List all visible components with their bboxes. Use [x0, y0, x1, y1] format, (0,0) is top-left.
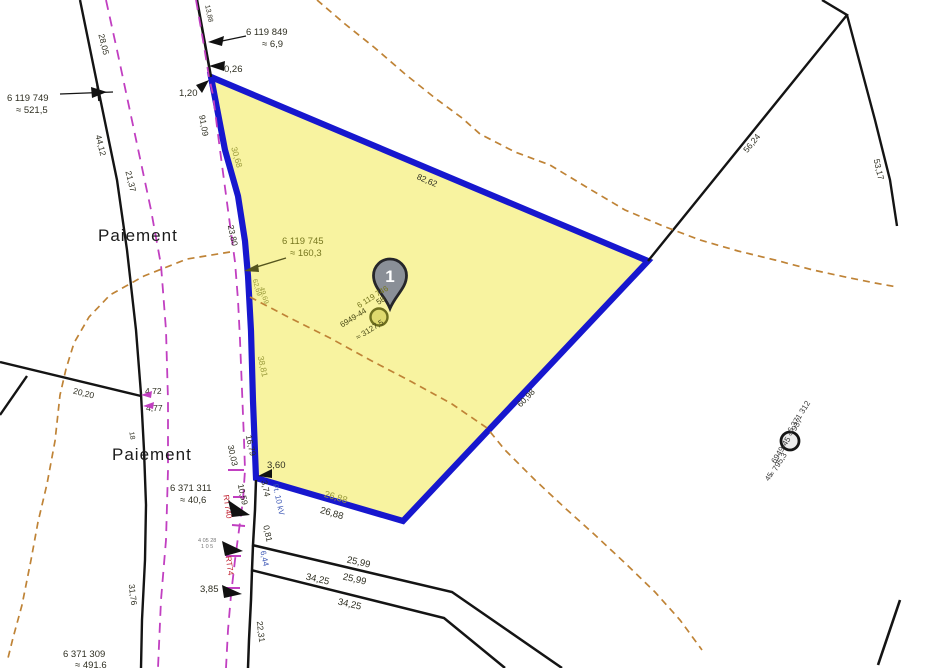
svg-text:6 371 309: 6 371 309 — [63, 649, 105, 660]
svg-text:≈ 40,6: ≈ 40,6 — [180, 495, 206, 506]
svg-text:1,20: 1,20 — [179, 88, 198, 99]
svg-text:18: 18 — [127, 431, 135, 440]
svg-text:Paiement: Paiement — [112, 445, 192, 464]
svg-text:6 371 311: 6 371 311 — [170, 483, 212, 494]
svg-text:Paiement: Paiement — [98, 226, 178, 245]
svg-text:≈ 160,3: ≈ 160,3 — [290, 248, 322, 259]
svg-text:3,85: 3,85 — [200, 584, 219, 595]
svg-text:1: 1 — [385, 267, 394, 286]
svg-text:3,60: 3,60 — [267, 460, 286, 471]
svg-text:≈ 491,6: ≈ 491,6 — [75, 660, 107, 668]
svg-text:6 119 749: 6 119 749 — [7, 93, 49, 104]
svg-text:≈ 521,5: ≈ 521,5 — [16, 105, 48, 116]
svg-text:6 119 745: 6 119 745 — [282, 236, 324, 247]
svg-text:6 119 849: 6 119 849 — [246, 27, 288, 38]
svg-text:1 0 5: 1 0 5 — [201, 544, 213, 550]
svg-text:≈ 6,9: ≈ 6,9 — [262, 39, 283, 50]
svg-text:0,26: 0,26 — [224, 64, 243, 75]
